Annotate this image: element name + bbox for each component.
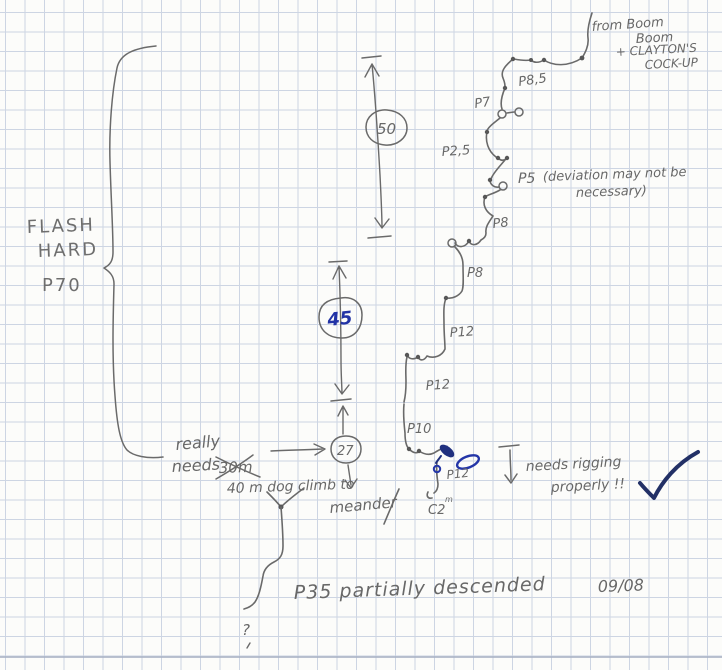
maillon-ring (499, 182, 507, 190)
depth-arrow-27: 27 (271, 406, 361, 488)
origin-text-line4: COCK-UP (644, 55, 699, 72)
pitch-label-p8-lower: P8 (467, 266, 483, 281)
deviation-note-line2: necessary) (576, 184, 647, 201)
arrow-50-ticks (362, 56, 391, 238)
bolt-dot (511, 57, 515, 61)
pitch-label-p8-5: P8,5 (517, 71, 547, 90)
pitch-label-p8-upper: P8 (492, 215, 510, 232)
deviation-ring (515, 108, 523, 116)
maillon-ring (498, 110, 506, 118)
paper-bottom-edge (0, 656, 722, 658)
depth-arrow-50: 50 (362, 56, 407, 238)
rigging-note-line2: properly !! (549, 476, 625, 496)
origin-note: from Boom Boom + CLAYTON'S COCK-UP (591, 15, 699, 72)
bolt-dot (529, 58, 533, 62)
bolt-dot (416, 355, 420, 359)
question-mark: ? (242, 621, 250, 639)
hanger-tail-stroke (436, 456, 441, 463)
bolt-dot (417, 449, 421, 453)
deviation-note-line1: (deviation may not be (543, 165, 687, 185)
down-arrow-with-tick (499, 445, 519, 483)
bottom-note: P35 partially descended 09/08 ? (242, 573, 644, 639)
depth-27-value: 27 (337, 444, 354, 459)
flash-hard-label: FLASH HARD P70 (26, 215, 98, 296)
bolt-dot (503, 86, 507, 90)
rope-note-crossed-value: 30m (219, 458, 253, 477)
ring-anchors (448, 108, 523, 247)
bolt-dot (405, 353, 409, 357)
question-tail-mark (247, 643, 250, 648)
date-note: 09/08 (597, 575, 644, 596)
bolt-dot (467, 239, 471, 243)
rigging-rope (404, 13, 592, 498)
bolt-dot (505, 156, 509, 160)
left-brace (104, 46, 163, 458)
c2-superscript: m (445, 495, 453, 504)
rigging-sketch: FLASH HARD P70 50 45 27 (0, 0, 722, 670)
bolt-dot (485, 130, 489, 134)
rope-note-really: really (175, 431, 222, 454)
depth-45-value: 45 (325, 307, 353, 331)
rope-note-needs: needs (171, 454, 220, 476)
arrow-50-shaft (365, 64, 389, 228)
pitch-label-p7: P7 (473, 95, 492, 112)
rigging-note-line1: needs rigging (525, 454, 622, 475)
check-icon (640, 452, 698, 498)
graph-paper-page: FLASH HARD P70 50 45 27 (0, 0, 722, 670)
flash-pitch-label: P70 (42, 275, 82, 296)
pitch-label-p5: P5 (518, 171, 535, 187)
pitch-label-p12-middle: P12 (425, 377, 450, 394)
pitch-label-p10: P10 (407, 422, 431, 437)
p35-rope (244, 507, 283, 609)
flash-label-line2: HARD (37, 239, 98, 262)
pitch-label-p12-lower: P12 (446, 466, 470, 482)
rigging-quality-note: needs rigging properly !! (525, 454, 625, 496)
arrow-27-up (338, 406, 348, 434)
pitch-label-p2-5: P2,5 (441, 143, 470, 160)
rigging-line (404, 13, 592, 498)
bolt-dot (496, 156, 500, 160)
flash-label-line1: FLASH (26, 215, 95, 238)
bolt-dot (444, 296, 448, 300)
depth-arrow-45: 45 (319, 261, 362, 401)
brace-stroke (104, 46, 163, 458)
checkmark (640, 452, 698, 498)
bolt-dot (542, 58, 546, 62)
rope-note-correction: 40 m dog climb to (227, 477, 355, 497)
bolt-dot (488, 178, 492, 182)
pitch-label-c2: C2 (428, 503, 445, 518)
bolt-dot (483, 195, 487, 199)
p35-note: P35 partially descended (293, 573, 546, 604)
pitch-label-p12-upper: P12 (449, 324, 474, 341)
bolt-dot (407, 447, 411, 451)
bolt-dot (580, 56, 585, 61)
arrow-27-pointer (271, 444, 325, 455)
needs-rigging-arrow (499, 445, 519, 483)
depth-50-value: 50 (377, 120, 396, 138)
